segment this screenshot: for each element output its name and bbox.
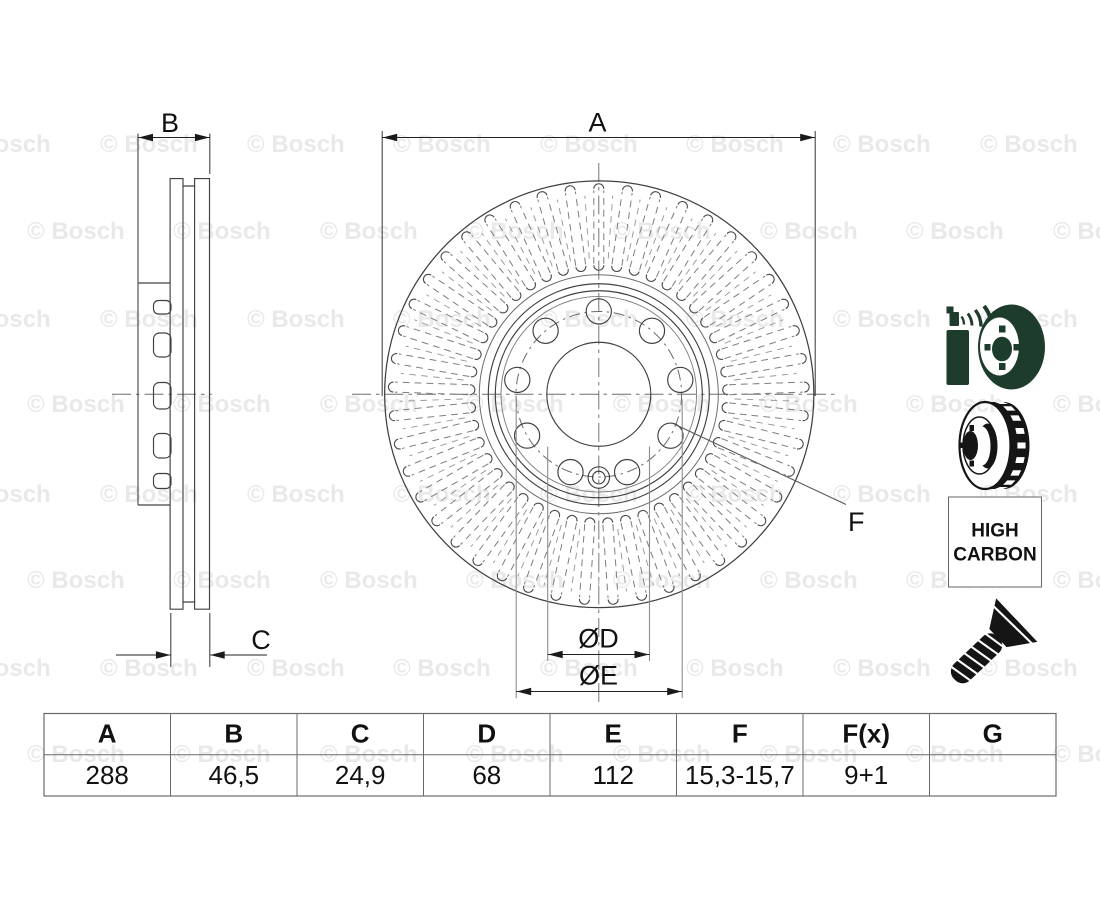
svg-text:© Bosch: © Bosch xyxy=(393,481,491,508)
svg-text:G: G xyxy=(983,719,1003,749)
svg-text:© Bosch: © Bosch xyxy=(1053,567,1100,594)
svg-text:288: 288 xyxy=(86,760,129,790)
svg-text:© Bosch: © Bosch xyxy=(393,655,491,682)
svg-text:© Bosch: © Bosch xyxy=(393,131,491,158)
svg-text:B: B xyxy=(224,719,243,749)
svg-text:9+1: 9+1 xyxy=(844,760,888,790)
svg-text:© Bosch: © Bosch xyxy=(1053,218,1100,245)
svg-text:CARBON: CARBON xyxy=(953,545,1036,566)
svg-text:© Bosch: © Bosch xyxy=(0,655,51,682)
svg-text:© Bosch: © Bosch xyxy=(173,391,271,418)
svg-text:HIGH: HIGH xyxy=(971,521,1019,542)
svg-text:© Bosch: © Bosch xyxy=(906,218,1004,245)
svg-text:© Bosch: © Bosch xyxy=(247,481,345,508)
svg-text:68: 68 xyxy=(472,760,501,790)
svg-text:© Bosch: © Bosch xyxy=(100,655,198,682)
svg-text:© Bosch: © Bosch xyxy=(613,218,711,245)
svg-text:© Bosch: © Bosch xyxy=(760,218,858,245)
svg-text:© Bosch: © Bosch xyxy=(320,567,418,594)
svg-text:© Bosch: © Bosch xyxy=(760,567,858,594)
svg-text:112: 112 xyxy=(592,760,633,790)
svg-text:© Bosch: © Bosch xyxy=(466,218,564,245)
svg-text:© Bosch: © Bosch xyxy=(980,655,1078,682)
svg-text:F(x): F(x) xyxy=(842,719,890,749)
svg-text:© Bosch: © Bosch xyxy=(320,218,418,245)
svg-text:© Bosch: © Bosch xyxy=(906,391,1004,418)
svg-text:B: B xyxy=(161,108,179,138)
svg-text:A: A xyxy=(98,719,117,749)
svg-text:© Bosch: © Bosch xyxy=(247,131,345,158)
svg-text:© Bosch: © Bosch xyxy=(686,131,784,158)
svg-text:© Bosch: © Bosch xyxy=(1053,741,1100,768)
svg-text:© Bosch: © Bosch xyxy=(27,391,125,418)
svg-text:© Bosch: © Bosch xyxy=(833,481,931,508)
svg-text:24,9: 24,9 xyxy=(335,760,386,790)
svg-text:© Bosch: © Bosch xyxy=(27,567,125,594)
svg-text:© Bosch: © Bosch xyxy=(393,306,491,333)
svg-text:C: C xyxy=(351,719,370,749)
svg-text:E: E xyxy=(605,719,622,749)
svg-text:© Bosch: © Bosch xyxy=(686,655,784,682)
svg-text:© Bosch: © Bosch xyxy=(760,391,858,418)
svg-text:F: F xyxy=(848,507,865,537)
svg-text:D: D xyxy=(477,719,496,749)
svg-text:A: A xyxy=(588,108,606,138)
svg-text:© Bosch: © Bosch xyxy=(1053,391,1100,418)
svg-text:© Bosch: © Bosch xyxy=(247,306,345,333)
svg-text:© Bosch: © Bosch xyxy=(27,218,125,245)
svg-text:© Bosch: © Bosch xyxy=(0,306,51,333)
svg-text:15,3-15,7: 15,3-15,7 xyxy=(685,760,795,790)
svg-text:© Bosch: © Bosch xyxy=(0,481,51,508)
svg-text:46,5: 46,5 xyxy=(208,760,259,790)
svg-text:© Bosch: © Bosch xyxy=(173,218,271,245)
svg-text:© Bosch: © Bosch xyxy=(247,655,345,682)
svg-text:© Bosch: © Bosch xyxy=(686,306,784,333)
svg-text:C: C xyxy=(251,625,271,655)
svg-text:F: F xyxy=(732,719,748,749)
svg-text:ØD: ØD xyxy=(578,624,619,654)
svg-text:ØE: ØE xyxy=(579,661,618,691)
svg-text:© Bosch: © Bosch xyxy=(320,391,418,418)
svg-text:© Bosch: © Bosch xyxy=(173,567,271,594)
svg-text:© Bosch: © Bosch xyxy=(980,131,1078,158)
svg-text:© Bosch: © Bosch xyxy=(833,655,931,682)
svg-text:© Bosch: © Bosch xyxy=(833,306,931,333)
svg-text:© Bosch: © Bosch xyxy=(0,131,51,158)
svg-text:© Bosch: © Bosch xyxy=(833,131,931,158)
